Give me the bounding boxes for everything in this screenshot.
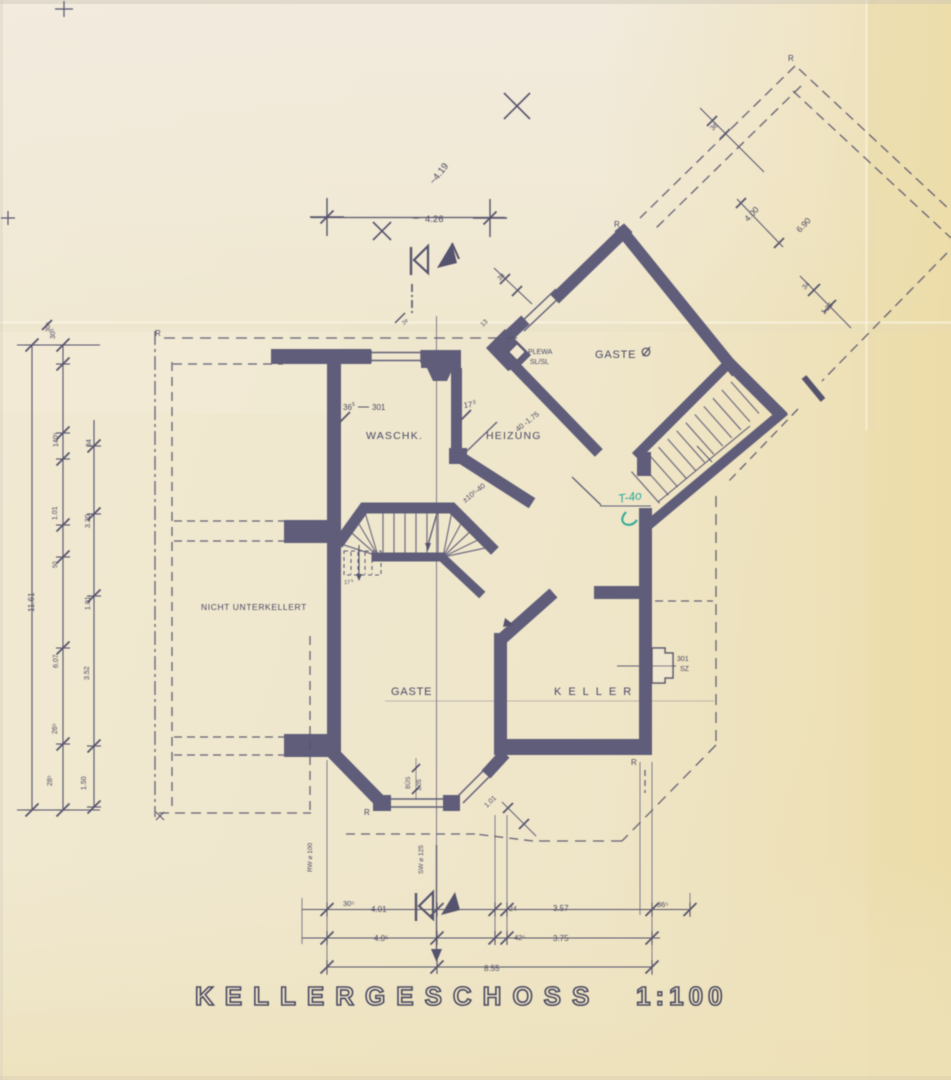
svg-text:5: 5 [352,402,355,408]
svg-text:36⁵: 36⁵ [657,900,668,909]
svg-text:WASCHK.: WASCHK. [366,430,423,442]
svg-text:140⁵: 140⁵ [53,432,60,447]
svg-text:1:100: 1:100 [636,981,728,1011]
svg-text:SZ: SZ [680,666,690,673]
svg-text:5: 5 [473,400,476,406]
svg-text:HEIZUNG: HEIZUNG [486,430,542,442]
svg-text:SW ⌀ 125: SW ⌀ 125 [418,845,425,874]
svg-text:PLEWA: PLEWA [528,349,553,356]
svg-text:34: 34 [86,439,93,447]
svg-text:4.0⁵: 4.0⁵ [374,934,388,943]
svg-text:3.20: 3.20 [85,514,92,528]
svg-text:R: R [364,808,370,817]
svg-text:28⁵: 28⁵ [47,775,54,786]
svg-text:3.75: 3.75 [553,934,569,943]
svg-text:8.55: 8.55 [484,964,500,973]
svg-text:BÜS: BÜS [405,777,412,789]
svg-text:4.26: 4.26 [425,214,444,225]
svg-text:R: R [631,758,637,767]
svg-text:R: R [788,54,794,63]
svg-text:11.61: 11.61 [27,592,36,612]
svg-text:1.01: 1.01 [52,506,59,520]
svg-text:1.01: 1.01 [85,596,92,610]
svg-text:42⁵: 42⁵ [514,933,525,942]
svg-text:26⁵: 26⁵ [52,723,59,734]
svg-text:17: 17 [344,580,350,586]
svg-text:GASTE: GASTE [595,349,636,361]
svg-text:6.07: 6.07 [53,654,60,668]
svg-text:RW ⌀ 100: RW ⌀ 100 [307,843,314,872]
svg-text:301: 301 [372,403,386,412]
svg-text:24: 24 [509,906,517,913]
svg-text:4.01: 4.01 [371,905,387,914]
svg-text:KELLERGESCHOSS: KELLERGESCHOSS [195,981,600,1011]
svg-text:NICHT UNTERKELLERT: NICHT UNTERKELLERT [201,602,307,612]
svg-text:R: R [614,220,620,229]
svg-text:30⁵: 30⁵ [45,322,52,332]
svg-text:GASTE: GASTE [391,686,432,698]
svg-text:KELLER: KELLER [554,686,638,698]
svg-text:3.52: 3.52 [84,666,91,680]
svg-text:301: 301 [677,656,689,663]
svg-text:R: R [155,329,161,338]
svg-text:SL/SL: SL/SL [530,359,549,366]
svg-text:50: 50 [53,561,59,568]
svg-text:30⁵: 30⁵ [343,899,354,908]
svg-text:3.57: 3.57 [553,904,569,913]
svg-text:1.50: 1.50 [81,776,88,790]
